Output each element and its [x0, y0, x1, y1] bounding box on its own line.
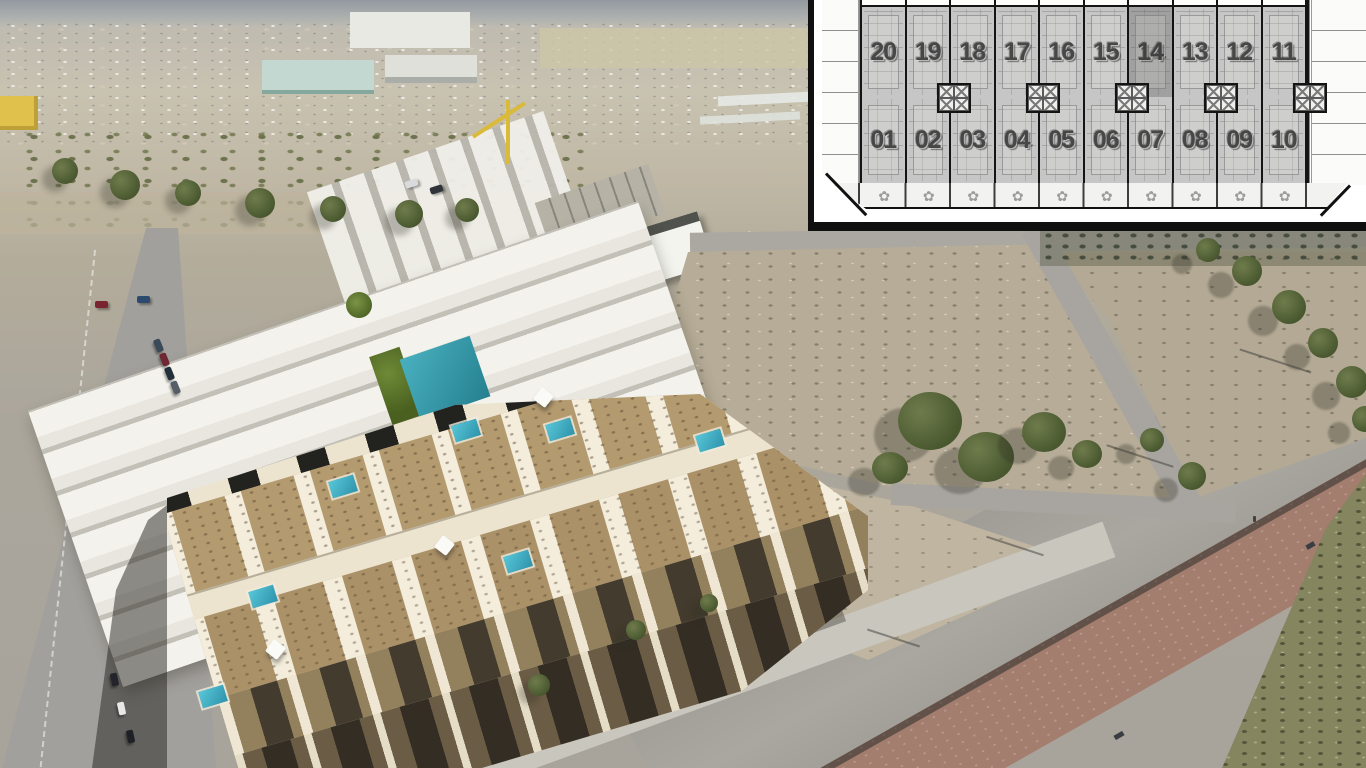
street-tree: [626, 620, 646, 640]
unit-cell: 20: [862, 7, 907, 97]
patio-table-icon: ✿: [951, 183, 996, 209]
patio-table-icon: ✿: [1040, 183, 1085, 209]
stair-core-symbol: [1293, 83, 1327, 113]
tree: [1022, 412, 1066, 452]
patio-table-icon: ✿: [1085, 183, 1130, 209]
terrace-cell: [1174, 0, 1219, 7]
floor-plan-block: 20 19 18 17 16 15 14 13 12 11 01 02 03 0…: [862, 0, 1307, 183]
industrial-building: [350, 12, 470, 48]
yellow-building: [0, 96, 38, 130]
teal-roof-warehouse: [262, 60, 374, 94]
tree: [1196, 238, 1220, 262]
car: [137, 296, 150, 303]
garden-symbols: ✿ ✿ ✿ ✿ ✿ ✿ ✿ ✿ ✿ ✿: [862, 183, 1307, 209]
unit-cell: 01: [862, 97, 907, 183]
street-tree: [528, 674, 550, 696]
tree: [52, 158, 78, 184]
patio-table-icon: ✿: [1129, 183, 1174, 209]
terrace-cell: [1085, 0, 1130, 7]
aerial-photo: 20 19 18 17 16 15 14 13 12 11 01 02 03 0…: [0, 0, 1366, 768]
tree: [1336, 366, 1366, 398]
pedestrian: [1253, 516, 1256, 522]
tree: [1308, 328, 1338, 358]
office-building: [385, 55, 477, 83]
tree: [872, 452, 908, 484]
tree: [175, 180, 201, 206]
tree: [1272, 290, 1306, 324]
tree: [110, 170, 140, 200]
patio-table-icon: ✿: [1263, 183, 1308, 209]
patio-table-icon: ✿: [862, 183, 907, 209]
palm-tree: [346, 292, 372, 318]
patio-table-icon: ✿: [1218, 183, 1263, 209]
terrace-cell: [1263, 0, 1308, 7]
patio-table-icon: ✿: [1174, 183, 1219, 209]
patio-table-icon: ✿: [907, 183, 952, 209]
car: [95, 301, 108, 308]
terrace-cell: [951, 0, 996, 7]
tree: [1072, 440, 1102, 468]
terrace-cell: [1218, 0, 1263, 7]
street-tree: [700, 594, 718, 612]
tree: [395, 200, 423, 228]
terrace-cell: [907, 0, 952, 7]
bench: [1113, 731, 1124, 740]
site-plan-overlay: 20 19 18 17 16 15 14 13 12 11 01 02 03 0…: [808, 0, 1366, 231]
terrace-cell: [996, 0, 1041, 7]
unit-grid: 20 19 18 17 16 15 14 13 12 11 01 02 03 0…: [862, 0, 1307, 183]
farm-fields: [540, 28, 815, 68]
stair-core-symbol: [937, 83, 971, 113]
terrace-cell: [1040, 0, 1085, 7]
stair-core-symbol: [1115, 83, 1149, 113]
tree: [1232, 256, 1262, 286]
tree: [898, 392, 962, 450]
tree: [455, 198, 479, 222]
tree: [245, 188, 275, 218]
tree: [958, 432, 1014, 482]
tree: [1178, 462, 1206, 490]
stair-core-symbol: [1026, 83, 1060, 113]
terrace-cell: [1129, 0, 1174, 7]
tree: [1140, 428, 1164, 452]
patio-table-icon: ✿: [996, 183, 1041, 209]
terrace-cell: [862, 0, 907, 7]
tree: [320, 196, 346, 222]
stair-core-symbol: [1204, 83, 1238, 113]
